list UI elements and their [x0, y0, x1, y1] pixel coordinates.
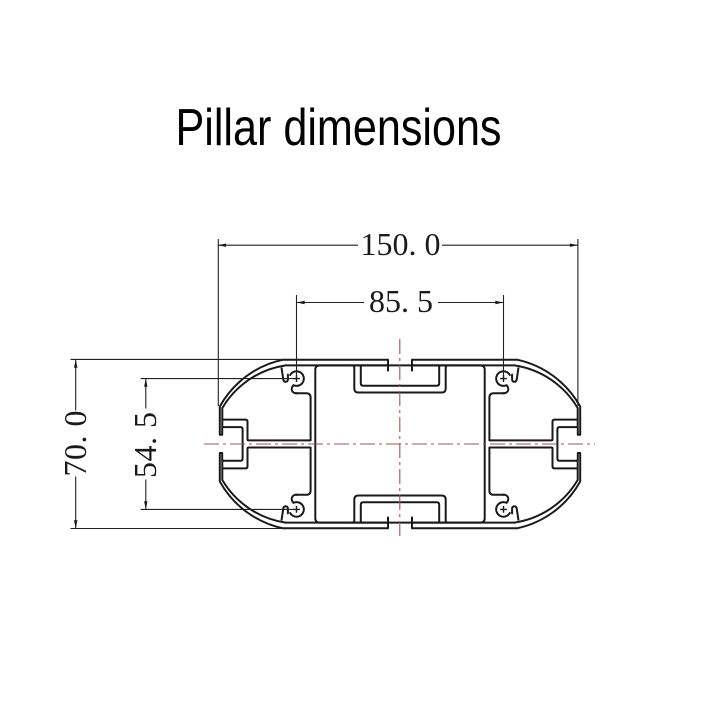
svg-text:85. 5: 85. 5 — [369, 283, 433, 319]
svg-text:70. 0: 70. 0 — [57, 410, 93, 477]
svg-text:150. 0: 150. 0 — [361, 226, 441, 262]
svg-text:Pillar dimensions: Pillar dimensions — [176, 99, 502, 157]
svg-text:54. 5: 54. 5 — [127, 412, 163, 479]
